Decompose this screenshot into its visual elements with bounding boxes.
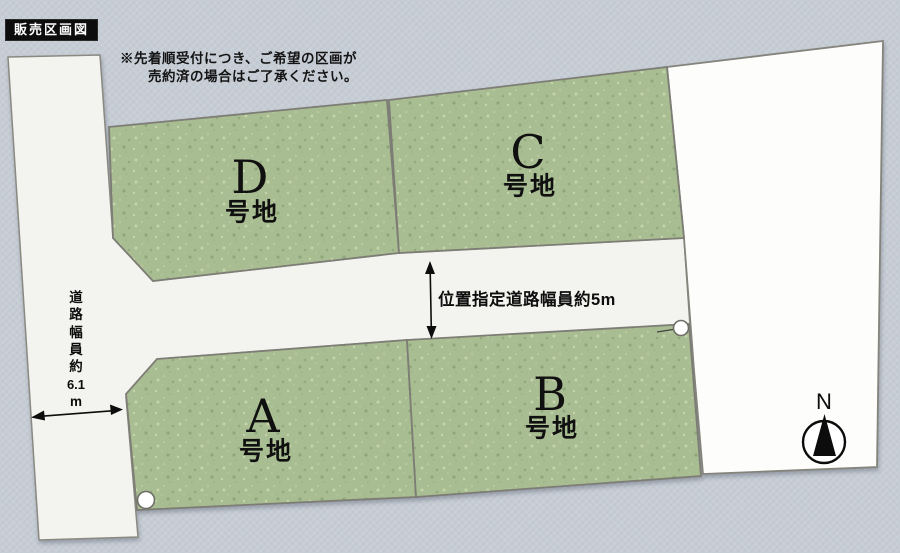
left-road-char: 道 <box>69 291 83 306</box>
designated-road-width-label: 位置指定道路幅員約5m <box>438 286 616 310</box>
site-plan-graphic <box>0 0 900 553</box>
left-road-width-value: 6.1 <box>67 378 85 392</box>
left-road-char: 約 <box>69 360 83 375</box>
map-title-badge: 販売区画図 <box>5 19 98 41</box>
survey-marker-b <box>674 321 689 336</box>
compass-north-label: N <box>816 391 832 413</box>
plot-b-letter: B <box>533 371 567 417</box>
left-road-width-unit: m <box>70 395 82 410</box>
left-road-char: 幅 <box>69 326 83 341</box>
plot-b-suffix: 号地 <box>525 416 579 441</box>
adjacent-lot-area <box>667 41 883 474</box>
left-road-char: 員 <box>69 343 83 358</box>
notice-line-2: 売約済の場合はご了承ください。 <box>148 70 358 84</box>
plot-a-letter: A <box>246 393 279 439</box>
plot-d-suffix: 号地 <box>225 200 279 225</box>
left-road-char: 路 <box>69 308 83 323</box>
plot-c-letter: C <box>510 129 545 175</box>
plot-d-letter: D <box>232 154 269 200</box>
sale-plot-map: 販売区画図 ※先着順受付につき、ご希望の区画が 売約済の場合はご了承ください。 … <box>0 0 900 553</box>
plot-c-suffix: 号地 <box>503 174 557 199</box>
survey-marker-a <box>138 492 155 509</box>
left-road-width-label: 道 路 幅 員 約 6.1 m <box>61 291 91 409</box>
notice-line-1: ※先着順受付につき、ご希望の区画が <box>120 52 357 66</box>
plot-a-suffix: 号地 <box>239 439 293 464</box>
